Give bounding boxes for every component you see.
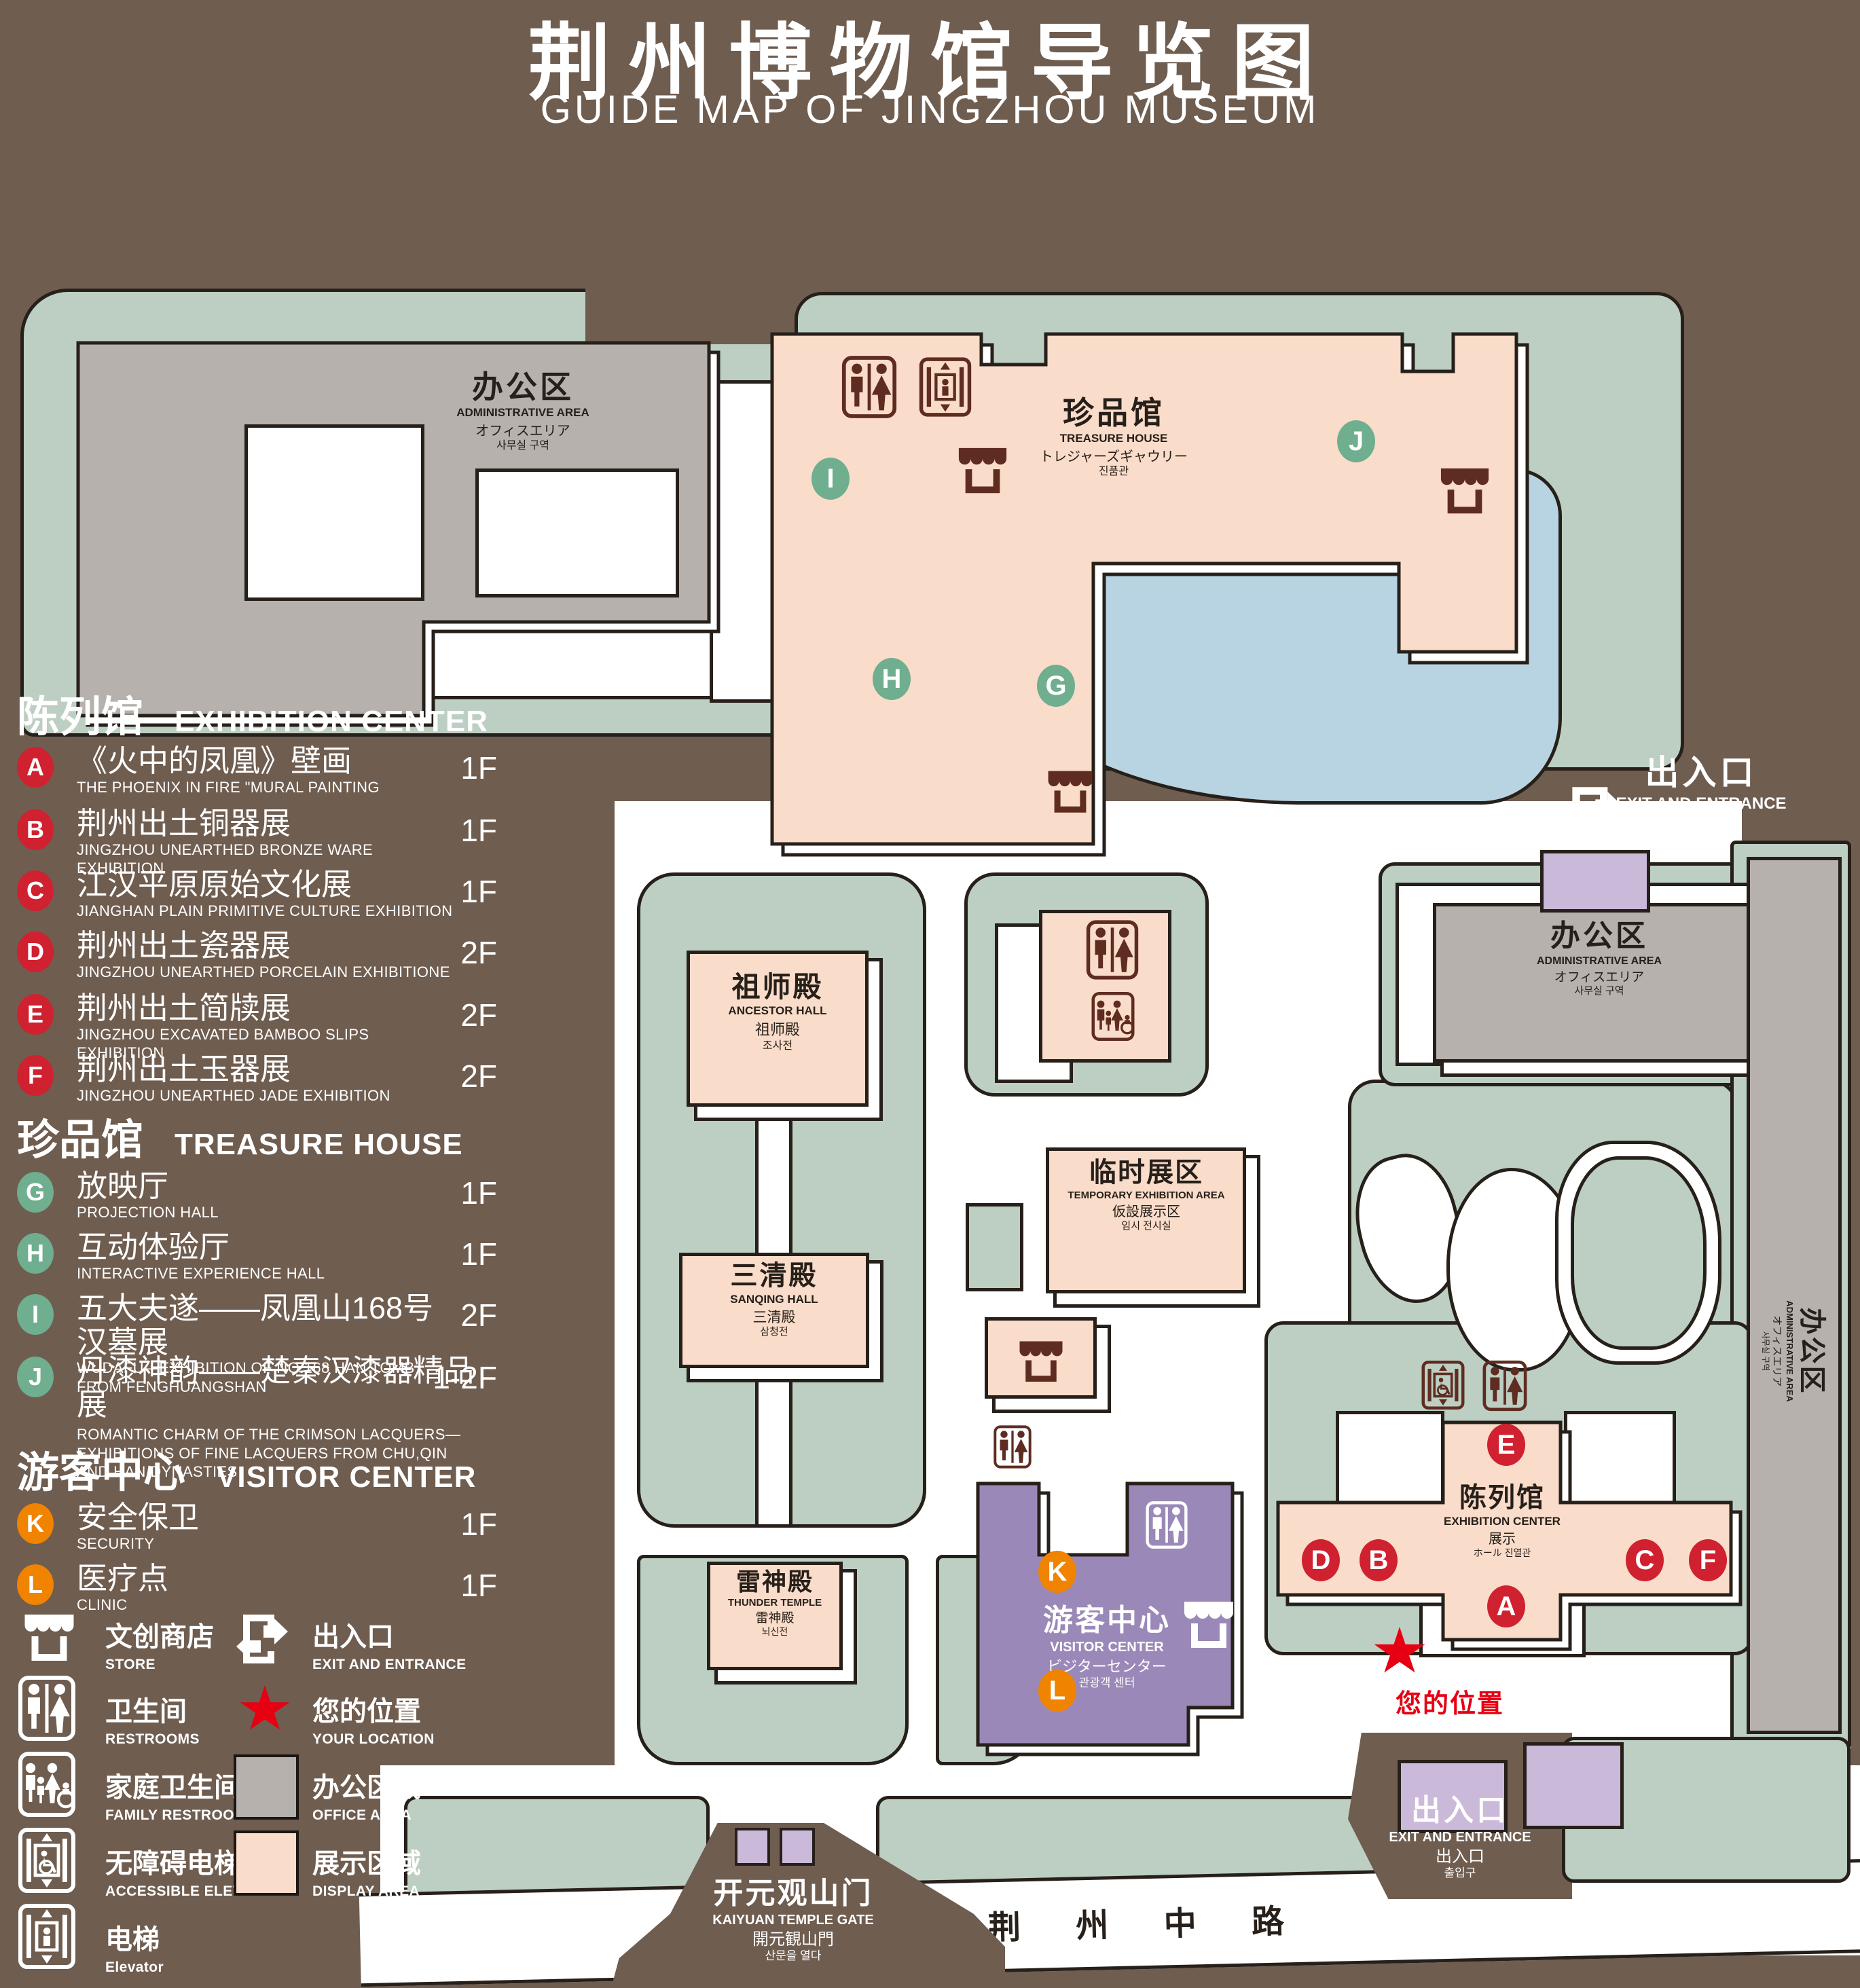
label-ancestor-hall: 祖师殿 ANCESTOR HALL 祖师殿 조사전 — [728, 970, 826, 1052]
family-restroom-icon — [17, 1750, 77, 1818]
restroom-icon — [1145, 1499, 1188, 1551]
elevator-icon — [17, 1902, 77, 1970]
marker-L: L — [1038, 1670, 1076, 1712]
legend-symbol-store: 文创商店STORE — [105, 1615, 214, 1673]
label-treasure-house: 珍品馆 TREASURE HOUSE トレジャーズギャウリー 진품관 — [1040, 394, 1188, 479]
legend-section-treasure: 珍品馆TREASURE HOUSE — [17, 1105, 463, 1166]
road-name: 荆 州 中 路 — [987, 1894, 1307, 1949]
page-subtitle: GUIDE MAP OF JINGZHOU MUSEUM — [0, 87, 1860, 132]
legend-symbol-elevator: 电梯Elevator — [105, 1917, 164, 1976]
legend-symbol-office-area: 办公区域OFFICE AREA — [312, 1765, 421, 1824]
marker-K: K — [1038, 1551, 1076, 1593]
marker-I: I — [812, 458, 850, 500]
courtyard-admin-nw-1 — [244, 424, 424, 601]
legend-section-exhibition: 陈列馆EXHIBITION CENTER — [17, 682, 488, 743]
marker-E: E — [1487, 1424, 1525, 1466]
legend-symbol-exit: 出入口EXIT AND ENTRANCE — [312, 1615, 467, 1673]
gate-pillar-right — [780, 1828, 815, 1866]
marker-C: C — [1626, 1539, 1664, 1581]
store-icon — [1017, 1336, 1065, 1389]
restroom-icon — [17, 1674, 77, 1742]
display-area-swatch — [234, 1830, 299, 1896]
your-location-label: 您的位置 — [1396, 1682, 1504, 1720]
label-sanqing-hall: 三清殿 SANQING HALL 三清殿 삼청전 — [730, 1259, 818, 1338]
legend-symbol-display-area: 展示区域DISPLAY AREA — [312, 1841, 421, 1900]
label-thunder-temple: 雷神殿 THUNDER TEMPLE 雷神殿 뇌신전 — [728, 1567, 822, 1638]
elevator-icon — [918, 354, 972, 420]
family-restroom-icon — [1091, 990, 1135, 1043]
label-gate: 开元观山门 KAIYUAN TEMPLE GATE 開元観山門 산문을 열다 — [712, 1875, 873, 1964]
marker-H: H — [873, 658, 911, 700]
legend-symbol-restrooms: 卫生间RESTROOMS — [105, 1689, 200, 1748]
parterre-ring-island — [1571, 1156, 1707, 1350]
marker-D: D — [1302, 1539, 1340, 1581]
courtyard-admin-nw-2 — [475, 468, 679, 597]
restroom-icon — [841, 354, 898, 420]
restroom-icon — [1482, 1355, 1528, 1416]
office-area-swatch — [234, 1754, 299, 1820]
legend-symbol-your-location: 您的位置YOUR LOCATION — [312, 1689, 435, 1748]
marker-J: J — [1337, 420, 1375, 462]
exit-icon — [231, 1608, 293, 1670]
marker-B: B — [1360, 1539, 1398, 1581]
restroom-icon — [1085, 918, 1139, 982]
label-exhibition-center: 陈列馆 EXHIBITION CENTER 展示 ホール 진열관 — [1444, 1481, 1561, 1559]
label-temporary-exhibition: 临时展区 TEMPORARY EXHIBITION AREA 仮設展示区 임시 … — [1068, 1156, 1224, 1233]
lawn-temporary-notch — [966, 1203, 1023, 1291]
your-location-icon — [239, 1685, 291, 1734]
label-exit-south: 出入口 EXIT AND ENTRANCE 出入口 출입구 — [1389, 1792, 1531, 1881]
legend-section-visitor: 游客中心VISITOR CENTER — [17, 1438, 476, 1499]
label-admin-northwest: 办公区 ADMINISTRATIVE AREA オフィスエリア 사무실 구역 — [456, 368, 589, 453]
accessible-elevator-icon — [17, 1826, 77, 1894]
store-icon — [17, 1610, 81, 1668]
marker-F: F — [1689, 1539, 1727, 1581]
marker-G: G — [1037, 665, 1075, 707]
store-icon — [956, 443, 1009, 501]
restroom-icon — [993, 1423, 1032, 1471]
label-admin-east: 办公区 ADMINISTRATIVE AREA オフィスエリア 사무실 구역 — [1537, 918, 1662, 998]
label-admin-strip: 办公区 ADMINISTRATIVE AREA オフィスエリア 사무실 구역 — [1760, 1300, 1828, 1402]
exit-south-kiosk-2 — [1523, 1742, 1624, 1829]
gate-pillar-left — [735, 1828, 770, 1866]
label-exit-ne: 出入口 EXIT AND ENTRANCE 出入口 출입구 — [1616, 752, 1786, 855]
building-admin-strip — [1747, 857, 1842, 1734]
store-icon — [1046, 766, 1095, 820]
marker-A: A — [1487, 1585, 1525, 1627]
exit-ne-kiosk — [1540, 850, 1650, 913]
store-icon — [1182, 1597, 1236, 1655]
guide-map-poster: 荆州博物馆导览图 GUIDE MAP OF JINGZHOU MUSEUM 办公… — [0, 0, 1860, 1988]
store-icon — [1438, 463, 1491, 521]
accessible-elevator-icon — [1421, 1355, 1465, 1415]
